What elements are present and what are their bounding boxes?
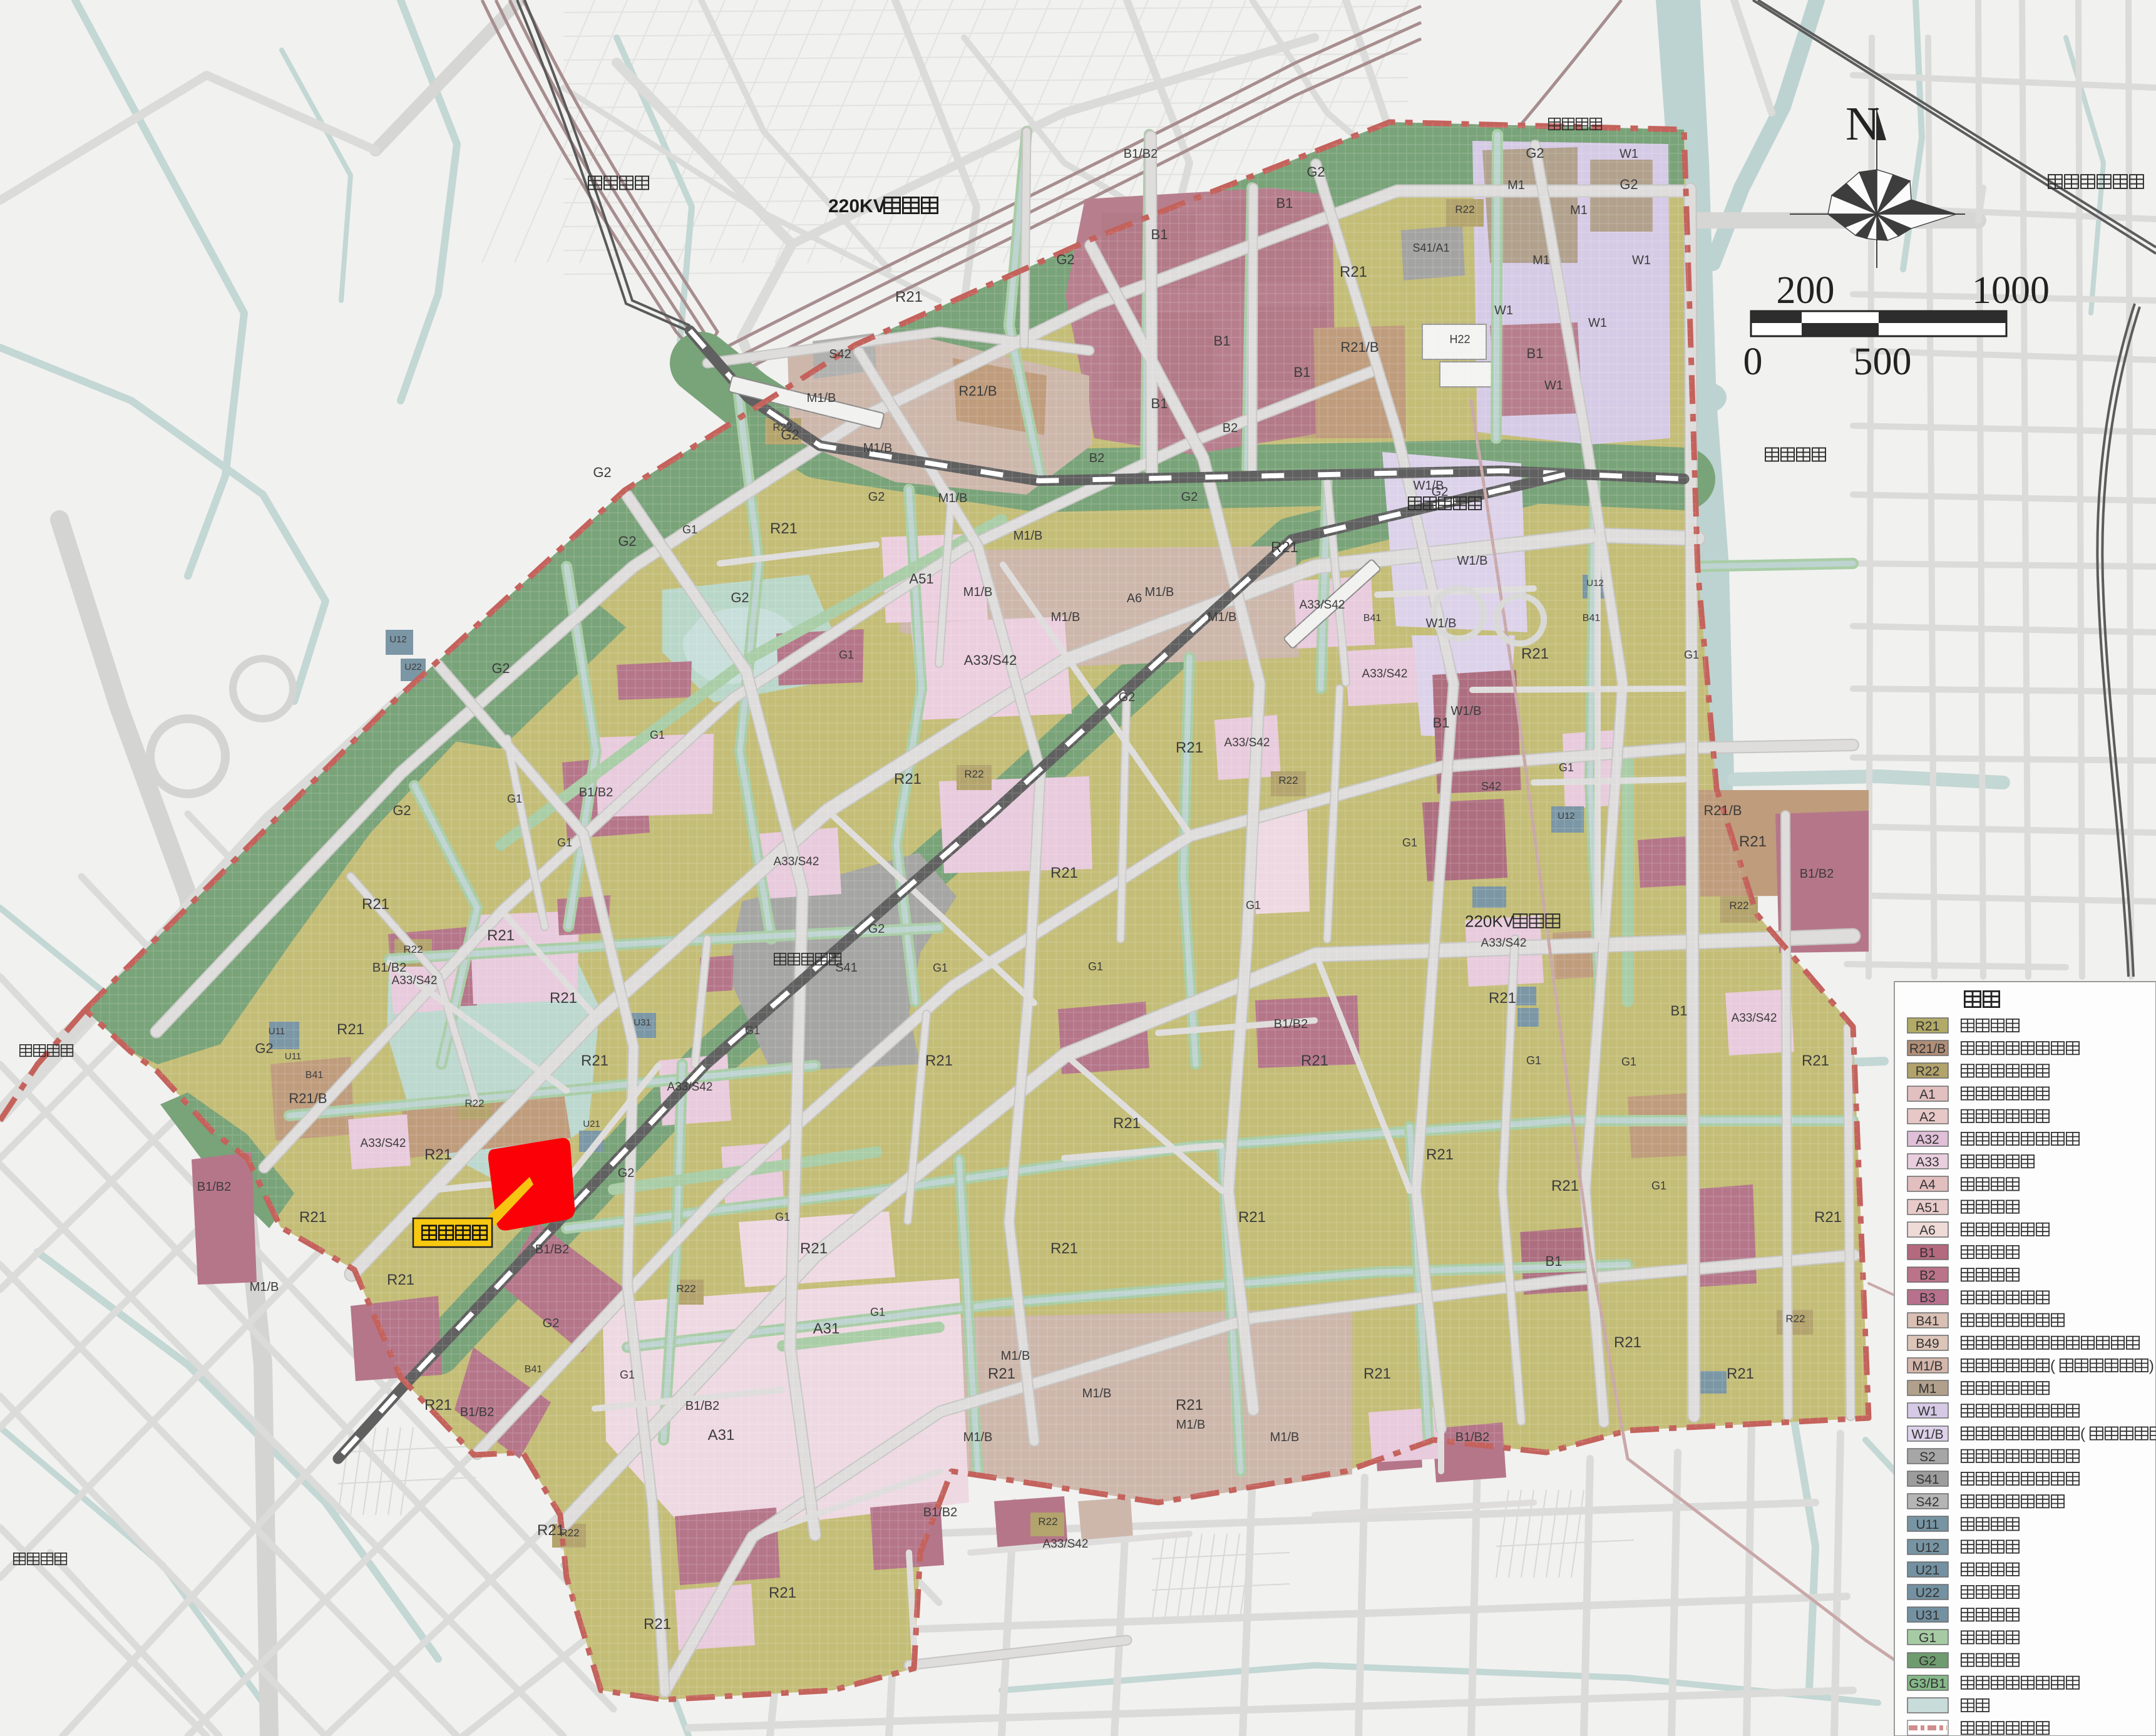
svg-text:G2: G2 bbox=[543, 1317, 560, 1330]
svg-text:R21: R21 bbox=[337, 1021, 364, 1038]
svg-text:R21: R21 bbox=[1050, 1240, 1078, 1257]
svg-text:A33/S42: A33/S42 bbox=[667, 1081, 713, 1094]
svg-text:B2: B2 bbox=[1223, 421, 1238, 435]
svg-text:G2: G2 bbox=[1181, 490, 1198, 504]
svg-text:U12: U12 bbox=[1586, 578, 1604, 588]
svg-text:A33/S42: A33/S42 bbox=[1224, 736, 1270, 749]
svg-text:R21/B: R21/B bbox=[289, 1091, 327, 1106]
svg-text:A33/S42: A33/S42 bbox=[1300, 598, 1345, 612]
svg-text:U11: U11 bbox=[269, 1026, 285, 1037]
svg-text:B3: B3 bbox=[1919, 1291, 1936, 1305]
svg-text:R21: R21 bbox=[1301, 1052, 1328, 1069]
svg-text:A31: A31 bbox=[813, 1320, 840, 1337]
svg-text:R21: R21 bbox=[1176, 1397, 1203, 1414]
svg-text:R21: R21 bbox=[1426, 1146, 1454, 1163]
svg-text:B2: B2 bbox=[1919, 1268, 1936, 1283]
svg-text:B1: B1 bbox=[1151, 396, 1168, 411]
svg-text:G1: G1 bbox=[1621, 1055, 1636, 1068]
svg-text:R21: R21 bbox=[1489, 990, 1516, 1007]
svg-text:G1: G1 bbox=[650, 729, 665, 741]
svg-text:B2: B2 bbox=[1089, 451, 1104, 465]
svg-text:M1: M1 bbox=[1532, 254, 1550, 267]
svg-text:M1/B: M1/B bbox=[250, 1280, 279, 1294]
svg-text:R21: R21 bbox=[299, 1209, 327, 1226]
svg-text:W1: W1 bbox=[1588, 316, 1607, 330]
svg-text:B1/B2: B1/B2 bbox=[372, 961, 406, 975]
svg-text:G1: G1 bbox=[1088, 960, 1103, 973]
svg-text:R22: R22 bbox=[1278, 774, 1298, 786]
svg-text:M1/B: M1/B bbox=[1051, 610, 1081, 624]
svg-text:R21: R21 bbox=[1238, 1209, 1266, 1226]
svg-text:M1/B: M1/B bbox=[938, 491, 968, 505]
svg-text:W1/B: W1/B bbox=[1426, 617, 1457, 630]
svg-text:R21: R21 bbox=[769, 1584, 796, 1601]
svg-text:R21/B: R21/B bbox=[1703, 803, 1742, 818]
svg-text:B1/B2: B1/B2 bbox=[535, 1243, 569, 1256]
svg-text:A33/S42: A33/S42 bbox=[392, 974, 438, 987]
svg-text:N: N bbox=[1845, 98, 1880, 150]
svg-text:W1/B: W1/B bbox=[1911, 1427, 1943, 1442]
svg-text:B41: B41 bbox=[525, 1364, 543, 1375]
svg-text:R21: R21 bbox=[1113, 1115, 1141, 1132]
svg-text:R21: R21 bbox=[1614, 1334, 1641, 1351]
svg-text:B1/B2: B1/B2 bbox=[460, 1405, 494, 1419]
svg-text:G2: G2 bbox=[1526, 145, 1544, 161]
svg-text:R21: R21 bbox=[1551, 1178, 1579, 1194]
svg-text:): ) bbox=[2149, 1358, 2154, 1375]
svg-text:B1/B2: B1/B2 bbox=[1274, 1017, 1308, 1031]
svg-text:G1: G1 bbox=[1402, 836, 1417, 849]
svg-text:G2: G2 bbox=[593, 465, 611, 480]
svg-text:R21: R21 bbox=[1271, 539, 1298, 556]
svg-text:B1/B2: B1/B2 bbox=[1800, 867, 1834, 881]
svg-text:R21: R21 bbox=[895, 289, 923, 306]
svg-text:G2: G2 bbox=[491, 660, 510, 676]
svg-text:W1: W1 bbox=[1544, 379, 1563, 393]
svg-text:G2: G2 bbox=[618, 1166, 635, 1180]
svg-text:B1/B2: B1/B2 bbox=[685, 1399, 719, 1413]
svg-text:B49: B49 bbox=[1916, 1337, 1939, 1351]
svg-text:M1/B: M1/B bbox=[1912, 1359, 1943, 1374]
svg-text:200: 200 bbox=[1777, 269, 1835, 312]
svg-text:G1: G1 bbox=[1919, 1631, 1936, 1645]
svg-text:S42: S42 bbox=[829, 347, 851, 361]
svg-text:A51: A51 bbox=[909, 571, 933, 587]
svg-text:S2: S2 bbox=[1919, 1450, 1936, 1464]
svg-text:M1: M1 bbox=[1918, 1382, 1936, 1396]
svg-text:A33/S42: A33/S42 bbox=[1732, 1012, 1777, 1025]
svg-text:(: ( bbox=[2080, 1425, 2085, 1442]
svg-text:U12: U12 bbox=[1558, 811, 1575, 821]
svg-text:W1/B: W1/B bbox=[1457, 554, 1488, 568]
svg-text:G2: G2 bbox=[1306, 164, 1325, 180]
svg-text:H22: H22 bbox=[1449, 333, 1470, 346]
svg-text:G1: G1 bbox=[933, 962, 948, 974]
svg-text:W1: W1 bbox=[1917, 1404, 1938, 1419]
svg-text:B1: B1 bbox=[1151, 227, 1168, 242]
svg-text:B1/B2: B1/B2 bbox=[1455, 1430, 1489, 1444]
svg-text:R22: R22 bbox=[403, 943, 423, 955]
svg-text:G1: G1 bbox=[775, 1211, 790, 1223]
svg-text:U31: U31 bbox=[1916, 1608, 1940, 1623]
svg-text:M1/B: M1/B bbox=[1145, 585, 1174, 599]
svg-text:G1: G1 bbox=[745, 1024, 760, 1037]
svg-text:M1/B: M1/B bbox=[1014, 529, 1043, 543]
svg-text:R21: R21 bbox=[925, 1052, 953, 1069]
svg-text:R21/B: R21/B bbox=[958, 383, 997, 399]
svg-text:B41: B41 bbox=[1363, 613, 1382, 624]
svg-text:A51: A51 bbox=[1916, 1201, 1939, 1215]
svg-text:G2: G2 bbox=[868, 922, 885, 936]
svg-text:G2: G2 bbox=[618, 533, 636, 549]
svg-text:A33/S42: A33/S42 bbox=[1481, 937, 1527, 950]
svg-text:S42: S42 bbox=[1916, 1495, 1939, 1509]
svg-text:G1: G1 bbox=[1526, 1054, 1541, 1067]
svg-text:B1/B2: B1/B2 bbox=[197, 1180, 231, 1194]
svg-text:B1: B1 bbox=[1546, 1253, 1563, 1269]
svg-text:U21: U21 bbox=[583, 1119, 600, 1129]
svg-text:M1/B: M1/B bbox=[1001, 1349, 1030, 1363]
svg-text:G2: G2 bbox=[1919, 1654, 1936, 1668]
svg-text:M1/B: M1/B bbox=[1082, 1387, 1112, 1400]
svg-text:220KV: 220KV bbox=[1465, 912, 1514, 930]
svg-text:M1/B: M1/B bbox=[807, 391, 836, 405]
svg-text:G1: G1 bbox=[507, 793, 522, 805]
svg-text:500: 500 bbox=[1854, 341, 1912, 383]
svg-text:R21: R21 bbox=[644, 1616, 671, 1633]
svg-text:R21: R21 bbox=[550, 990, 577, 1007]
svg-text:M1/B: M1/B bbox=[1176, 1418, 1206, 1432]
svg-text:S42: S42 bbox=[1481, 780, 1501, 793]
svg-text:R22: R22 bbox=[773, 421, 792, 433]
svg-text:M1/B: M1/B bbox=[1270, 1430, 1300, 1444]
svg-text:W1: W1 bbox=[1632, 254, 1651, 267]
svg-text:G1: G1 bbox=[1684, 649, 1699, 661]
svg-text:R21: R21 bbox=[1176, 739, 1203, 756]
svg-text:G2: G2 bbox=[1119, 691, 1136, 704]
svg-text:R21: R21 bbox=[1050, 865, 1078, 881]
svg-text:R22: R22 bbox=[964, 768, 983, 780]
svg-text:R22: R22 bbox=[1785, 1313, 1805, 1325]
svg-text:M1: M1 bbox=[1570, 203, 1588, 217]
svg-text:B1: B1 bbox=[1919, 1246, 1936, 1260]
svg-text:R21: R21 bbox=[1802, 1052, 1829, 1069]
svg-text:G1: G1 bbox=[620, 1369, 635, 1381]
svg-text:U31: U31 bbox=[634, 1017, 651, 1028]
svg-text:G3/B1: G3/B1 bbox=[1909, 1677, 1946, 1691]
svg-text:A6: A6 bbox=[1919, 1223, 1936, 1238]
svg-text:R21: R21 bbox=[800, 1240, 828, 1257]
svg-text:R22: R22 bbox=[465, 1097, 484, 1109]
svg-text:U11: U11 bbox=[285, 1051, 301, 1062]
svg-text:G1: G1 bbox=[839, 649, 854, 661]
svg-text:G2: G2 bbox=[393, 803, 411, 818]
svg-text:S41/A1: S41/A1 bbox=[1412, 242, 1449, 254]
svg-text:R22: R22 bbox=[1038, 1516, 1057, 1528]
svg-text:A2: A2 bbox=[1919, 1110, 1936, 1124]
svg-text:G2: G2 bbox=[1620, 177, 1638, 192]
svg-text:A31: A31 bbox=[708, 1427, 735, 1444]
svg-text:A6: A6 bbox=[1127, 592, 1142, 605]
svg-text:A33/S42: A33/S42 bbox=[774, 855, 819, 868]
svg-text:R21: R21 bbox=[1916, 1019, 1940, 1034]
svg-text:M1/B: M1/B bbox=[963, 1430, 993, 1444]
svg-text:G2: G2 bbox=[1056, 252, 1074, 267]
svg-text:R22: R22 bbox=[560, 1527, 579, 1539]
svg-text:B1: B1 bbox=[1276, 195, 1293, 211]
svg-text:W1: W1 bbox=[1620, 147, 1638, 161]
svg-text:B1/B2: B1/B2 bbox=[923, 1506, 957, 1519]
svg-text:G1: G1 bbox=[1559, 761, 1574, 774]
svg-text:R21: R21 bbox=[581, 1052, 608, 1069]
svg-text:B1: B1 bbox=[1294, 364, 1311, 380]
svg-text:R21: R21 bbox=[1340, 264, 1367, 280]
svg-text:R21: R21 bbox=[387, 1271, 414, 1288]
svg-text:S41: S41 bbox=[835, 961, 858, 975]
svg-text:M1/B: M1/B bbox=[1208, 610, 1237, 624]
svg-text:R21: R21 bbox=[988, 1365, 1015, 1382]
svg-text:R22: R22 bbox=[1916, 1064, 1940, 1079]
svg-text:W1: W1 bbox=[1494, 304, 1513, 317]
svg-text:R21: R21 bbox=[894, 771, 921, 788]
svg-text:B1: B1 bbox=[1671, 1003, 1688, 1019]
svg-text:R22: R22 bbox=[1455, 203, 1474, 215]
svg-text:W1/B: W1/B bbox=[1414, 479, 1444, 493]
svg-text:A33/S42: A33/S42 bbox=[361, 1137, 406, 1150]
svg-text:R21: R21 bbox=[1739, 833, 1767, 850]
svg-text:R21: R21 bbox=[770, 520, 798, 537]
svg-text:R21: R21 bbox=[1727, 1365, 1754, 1382]
svg-text:R21/B: R21/B bbox=[1909, 1042, 1946, 1056]
svg-text:B1: B1 bbox=[1433, 715, 1450, 731]
svg-text:R22: R22 bbox=[1729, 900, 1748, 912]
svg-text:W1/B: W1/B bbox=[1451, 704, 1482, 718]
svg-text:0: 0 bbox=[1743, 341, 1763, 383]
svg-text:A33/S42: A33/S42 bbox=[964, 652, 1017, 668]
svg-text:M1/B: M1/B bbox=[963, 585, 993, 599]
svg-text:U22: U22 bbox=[404, 662, 422, 672]
svg-text:G2: G2 bbox=[255, 1040, 273, 1056]
svg-text:A4: A4 bbox=[1919, 1178, 1936, 1192]
svg-text:S41: S41 bbox=[1916, 1472, 1939, 1487]
svg-text:B41: B41 bbox=[305, 1070, 324, 1081]
svg-text:G1: G1 bbox=[682, 523, 697, 536]
svg-text:A33/S42: A33/S42 bbox=[1362, 667, 1408, 681]
svg-text:B1/B2: B1/B2 bbox=[579, 786, 613, 799]
svg-text:R21: R21 bbox=[1521, 645, 1549, 662]
svg-text:G1: G1 bbox=[1246, 899, 1261, 912]
svg-text:B1/B2: B1/B2 bbox=[1124, 147, 1158, 161]
svg-text:R21: R21 bbox=[1363, 1365, 1391, 1382]
svg-text:G2: G2 bbox=[731, 590, 749, 605]
svg-text:M1: M1 bbox=[1507, 178, 1525, 192]
svg-text:G1: G1 bbox=[1651, 1179, 1666, 1192]
svg-text:U12: U12 bbox=[389, 634, 407, 645]
svg-text:A1: A1 bbox=[1919, 1087, 1936, 1102]
svg-text:U11: U11 bbox=[1916, 1518, 1939, 1532]
svg-text:B41: B41 bbox=[1916, 1314, 1939, 1328]
svg-text:220KV: 220KV bbox=[828, 196, 886, 217]
svg-text:(: ( bbox=[2050, 1358, 2055, 1375]
svg-text:1000: 1000 bbox=[1972, 269, 2050, 312]
svg-text:U21: U21 bbox=[1916, 1563, 1940, 1578]
svg-text:G2: G2 bbox=[868, 490, 885, 504]
svg-text:G1: G1 bbox=[870, 1306, 885, 1318]
svg-text:R21: R21 bbox=[424, 1397, 452, 1414]
svg-text:A33: A33 bbox=[1916, 1155, 1939, 1169]
svg-text:R22: R22 bbox=[676, 1283, 696, 1295]
svg-text:R21: R21 bbox=[1814, 1209, 1842, 1226]
svg-text:B1: B1 bbox=[1214, 333, 1231, 349]
svg-text:R21/B: R21/B bbox=[1340, 339, 1378, 355]
svg-text:B1: B1 bbox=[1527, 346, 1544, 361]
svg-text:G1: G1 bbox=[557, 836, 572, 849]
svg-text:A33/S42: A33/S42 bbox=[1043, 1538, 1089, 1551]
svg-text:U12: U12 bbox=[1916, 1541, 1940, 1555]
svg-text:M1/B: M1/B bbox=[863, 441, 893, 455]
svg-text:R21: R21 bbox=[362, 896, 389, 913]
svg-text:R21: R21 bbox=[424, 1146, 452, 1163]
svg-text:U22: U22 bbox=[1916, 1586, 1940, 1600]
svg-text:R21: R21 bbox=[487, 927, 515, 944]
svg-text:B41: B41 bbox=[1583, 613, 1601, 624]
svg-text:A32: A32 bbox=[1916, 1133, 1939, 1147]
